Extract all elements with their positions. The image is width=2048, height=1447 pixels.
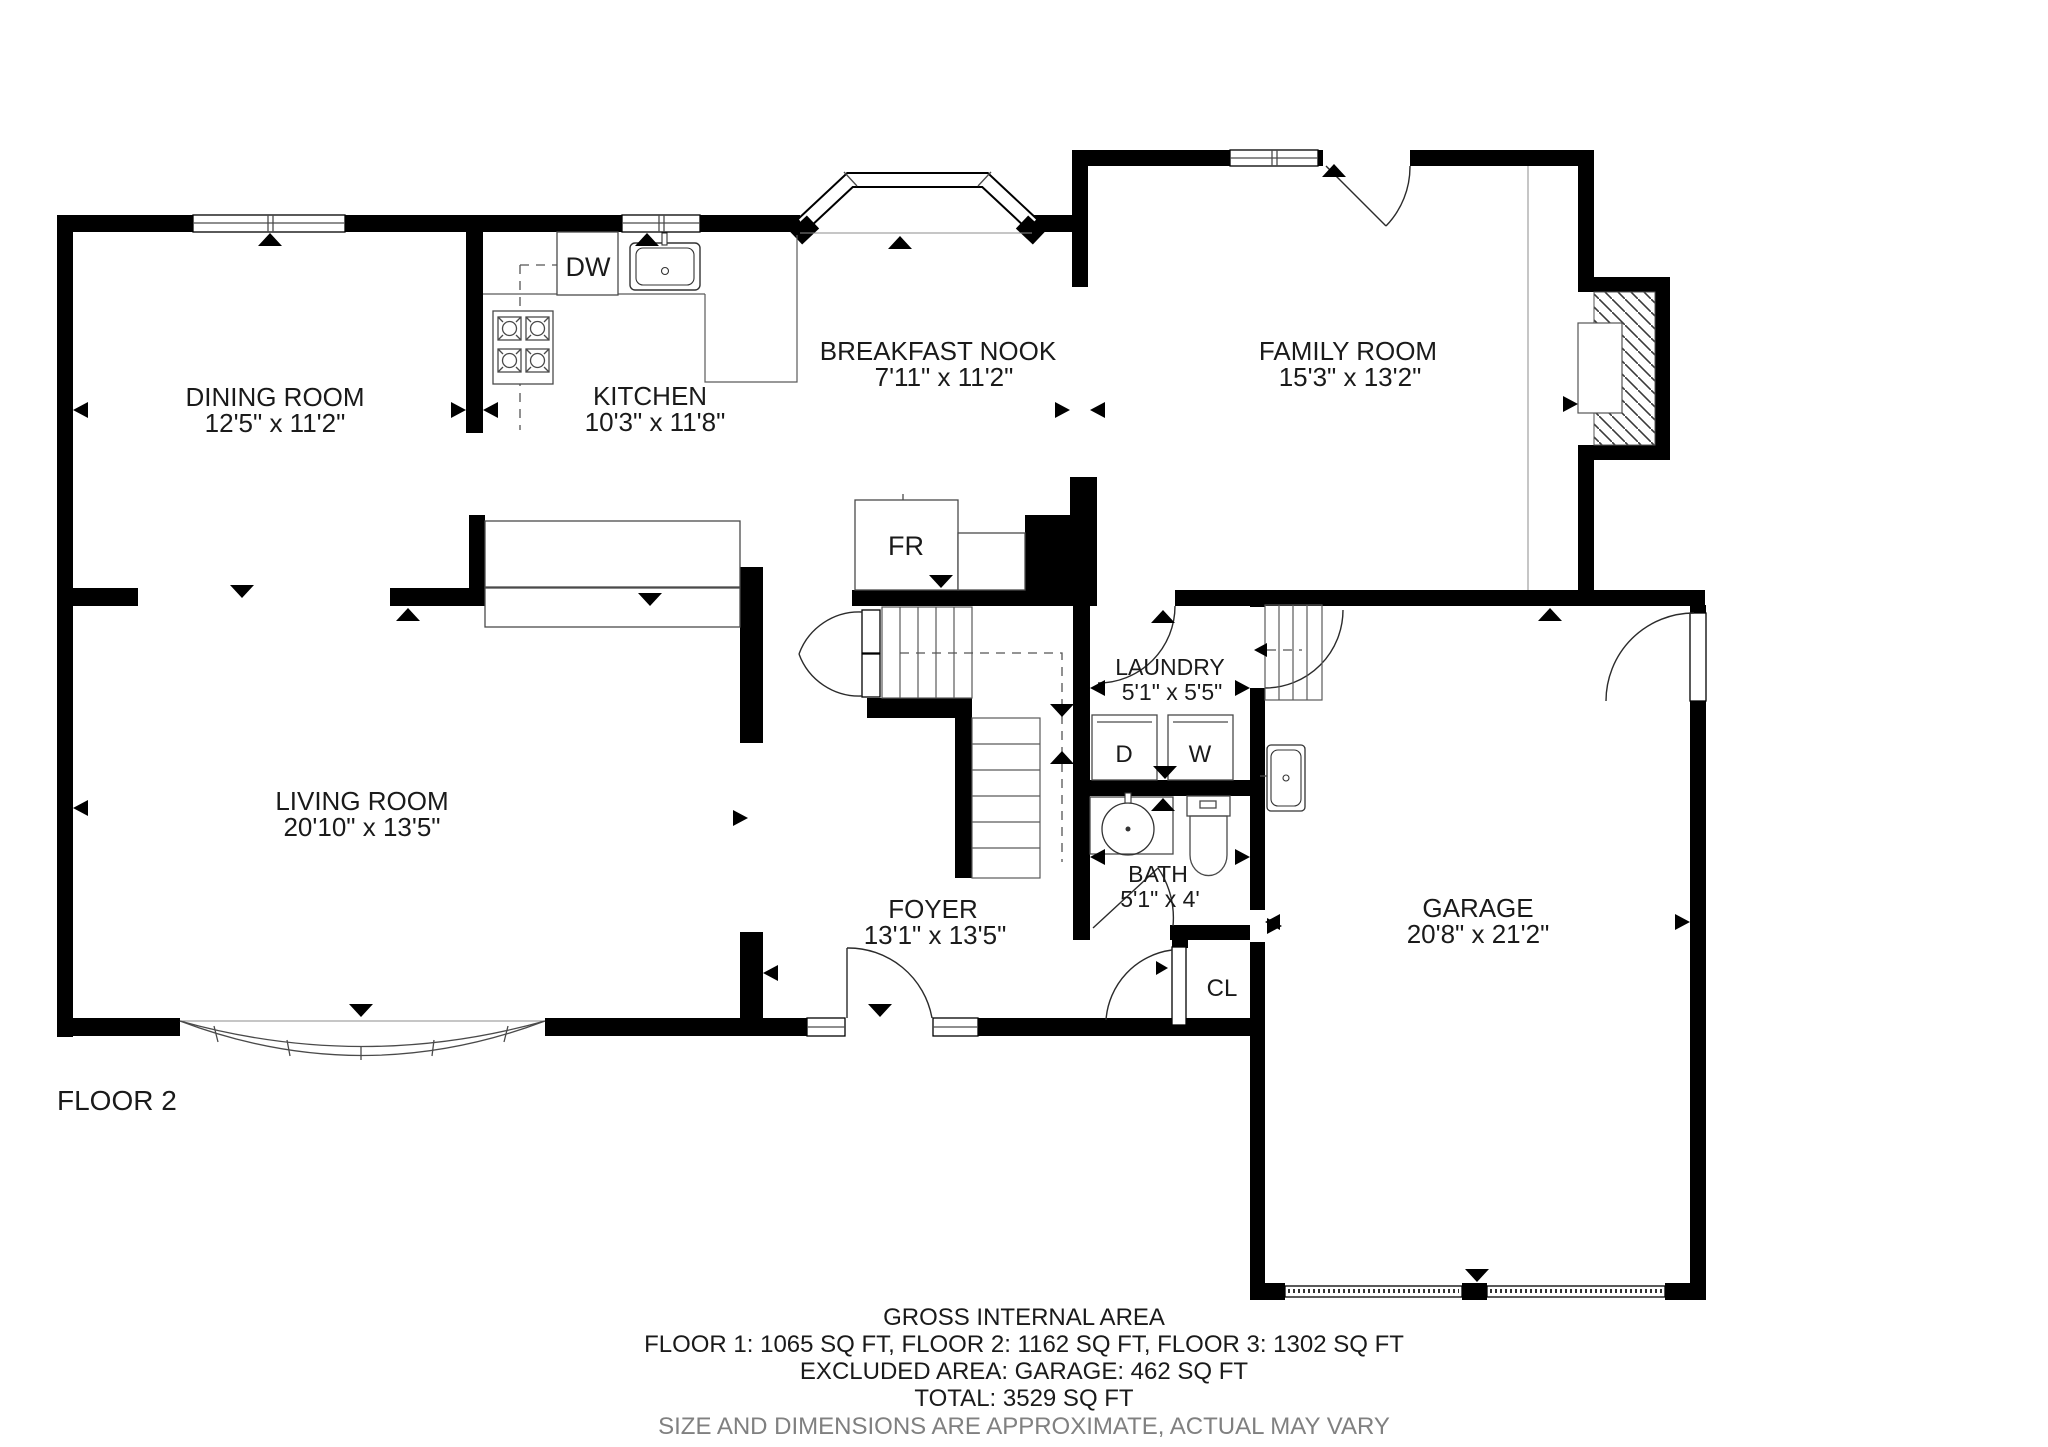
wall-segment (955, 718, 972, 878)
fireplace-wall-bottom (1578, 445, 1670, 460)
room-label-laundry: LAUNDRY (1115, 654, 1225, 680)
dining-window (193, 215, 345, 232)
dimension-marker (451, 402, 466, 418)
wall-segment (466, 215, 483, 433)
garage-door-panel-right (1487, 1286, 1665, 1297)
half-wall (485, 588, 740, 627)
dimension-marker (1090, 402, 1105, 418)
washer-label: W (1189, 741, 1212, 768)
floor-label: FLOOR 2 (57, 1085, 177, 1116)
wall-segment (1172, 933, 1188, 948)
wall-segment (545, 1018, 807, 1036)
dimension-marker (483, 402, 498, 418)
wall-segment (1073, 590, 1090, 796)
room-dims-foyer: 13'1" x 13'5" (864, 920, 1007, 950)
dryer-label: D (1115, 741, 1132, 768)
dimension-marker (1151, 610, 1175, 623)
refrigerator-label: FR (888, 531, 924, 561)
garage-steps (1265, 605, 1322, 700)
dimension-marker (1090, 680, 1105, 696)
room-label-bath: BATH (1128, 861, 1188, 887)
dimension-marker (1563, 396, 1578, 412)
wall-segment (1578, 150, 1594, 277)
dimension-marker (1675, 914, 1690, 930)
room-dims-garage: 20'8" x 21'2" (1407, 919, 1550, 949)
door-opening (845, 1018, 933, 1036)
dimension-marker (1235, 680, 1250, 696)
floor-plan-drawing: DW FR (0, 0, 2048, 1447)
dryer: D (1092, 715, 1157, 780)
dishwasher: DW (557, 232, 618, 295)
room-dims-nook: 7'11" x 11'2" (875, 362, 1014, 392)
dimension-marker (733, 810, 748, 826)
dimension-marker (73, 800, 88, 816)
wall-segment (1462, 1283, 1487, 1300)
dimension-marker (230, 585, 254, 598)
walls (57, 150, 1706, 1300)
closet-door (1106, 947, 1186, 1025)
wall-segment (740, 932, 763, 1032)
door-opening (1097, 590, 1175, 606)
wall-segment (57, 215, 73, 1037)
garage-entry-door (1606, 613, 1706, 701)
toilet (1187, 796, 1230, 876)
dimension-marker (635, 233, 659, 246)
family-room-window (1230, 150, 1318, 166)
wall-segment (57, 588, 138, 606)
room-dims-family: 15'3" x 13'2" (1279, 362, 1422, 392)
dimension-marker (1235, 849, 1250, 865)
dimension-marker (73, 402, 88, 418)
fireplace-wall-right (1655, 277, 1670, 460)
wall-segment (852, 590, 1705, 606)
dimension-marker (1538, 608, 1562, 621)
wall-segment (867, 698, 972, 718)
wall-segment (1073, 780, 1265, 796)
bay-window (796, 172, 1039, 238)
wall-segment (57, 1018, 180, 1036)
summary-excluded: EXCLUDED AREA: GARAGE: 462 SQ FT (800, 1358, 1248, 1385)
dimension-marker (888, 236, 912, 249)
dimension-marker (1465, 1269, 1489, 1282)
wall-segment (1073, 780, 1090, 940)
dimension-marker (763, 965, 778, 981)
room-dims-dining: 12'5" x 11'2" (205, 408, 346, 438)
wall-segment (1072, 150, 1088, 287)
wall-segment (978, 1018, 1265, 1036)
main-stairs (799, 607, 1074, 878)
door-opening (1323, 150, 1410, 166)
room-dims-bath: 5'1" x 4' (1120, 886, 1200, 912)
hall-counter (958, 533, 1025, 590)
wall-segment (469, 515, 485, 606)
stove (493, 311, 553, 384)
windows (180, 150, 1665, 1297)
dimension-marker (1156, 961, 1168, 975)
summary-title: GROSS INTERNAL AREA (883, 1304, 1165, 1331)
area-summary: GROSS INTERNAL AREA FLOOR 1: 1065 SQ FT,… (644, 1304, 1404, 1440)
dimension-marker (868, 1004, 892, 1017)
fireplace (1578, 292, 1655, 445)
front-door (847, 948, 932, 1018)
wall-segment (740, 567, 763, 743)
dimension-marker (396, 608, 420, 621)
summary-floors: FLOOR 1: 1065 SQ FT, FLOOR 2: 1162 SQ FT… (644, 1331, 1404, 1358)
kitchen-peninsula (485, 521, 740, 587)
wall-segment (1690, 605, 1706, 1300)
room-dims-laundry: 5'1" x 5'5" (1122, 679, 1223, 705)
wall-segment (1578, 460, 1594, 606)
summary-disclaimer: SIZE AND DIMENSIONS ARE APPROXIMATE, ACT… (658, 1413, 1390, 1440)
dimension-markers (73, 164, 1690, 1282)
summary-total: TOTAL: 3529 SQ FT (914, 1385, 1134, 1412)
firebox (1578, 323, 1622, 413)
dimension-marker (258, 233, 282, 246)
laundry-garage-door (1265, 610, 1343, 688)
kitchen-window (622, 215, 700, 232)
utility-sink (1260, 745, 1305, 811)
wall-segment (1025, 515, 1097, 590)
dimension-marker (349, 1004, 373, 1017)
bow-window (180, 1021, 545, 1060)
floor-plan-page: DW FR (0, 0, 2048, 1447)
garage-door-panel-left (1285, 1286, 1462, 1297)
dishwasher-label: DW (566, 252, 611, 282)
room-dims-kitchen: 10'3" x 11'8" (585, 407, 726, 437)
room-dims-living: 20'10" x 13'5" (283, 812, 440, 842)
wall-gap (1250, 910, 1265, 942)
dimension-marker (1055, 402, 1070, 418)
closet-label: CL (1207, 975, 1238, 1002)
washer: W (1168, 715, 1233, 780)
door-opening (1090, 925, 1170, 940)
